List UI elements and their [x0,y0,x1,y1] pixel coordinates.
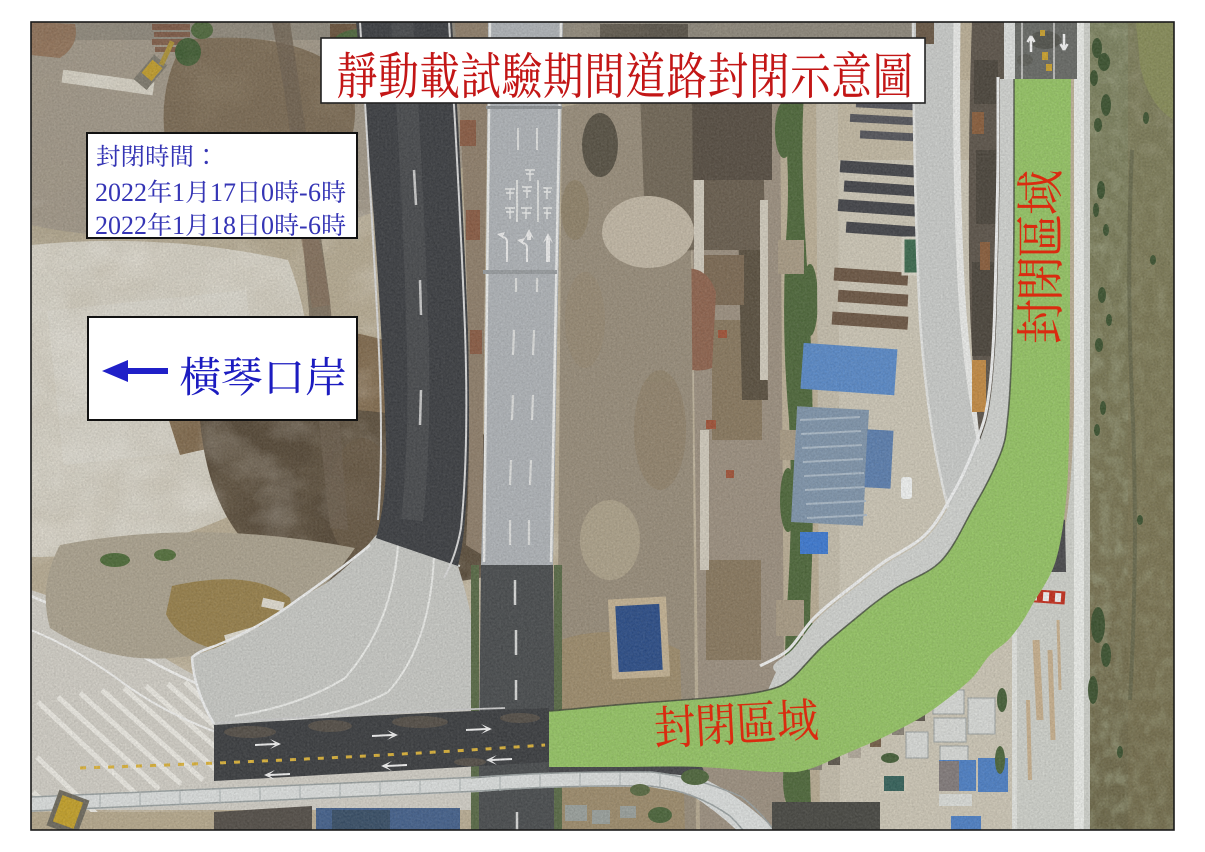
svg-text:1: 1 [172,178,185,207]
svg-text:6: 6 [308,178,321,207]
svg-text:0: 0 [261,211,274,240]
svg-text:18: 18 [210,211,236,240]
svg-text:2022: 2022 [95,211,147,240]
svg-text:0: 0 [261,178,274,207]
svg-text:-: - [299,178,308,207]
svg-text:1: 1 [172,211,185,240]
svg-text:6: 6 [308,211,321,240]
svg-text:17: 17 [210,178,236,207]
svg-text:-: - [299,211,308,240]
svg-text:2022: 2022 [95,178,147,207]
